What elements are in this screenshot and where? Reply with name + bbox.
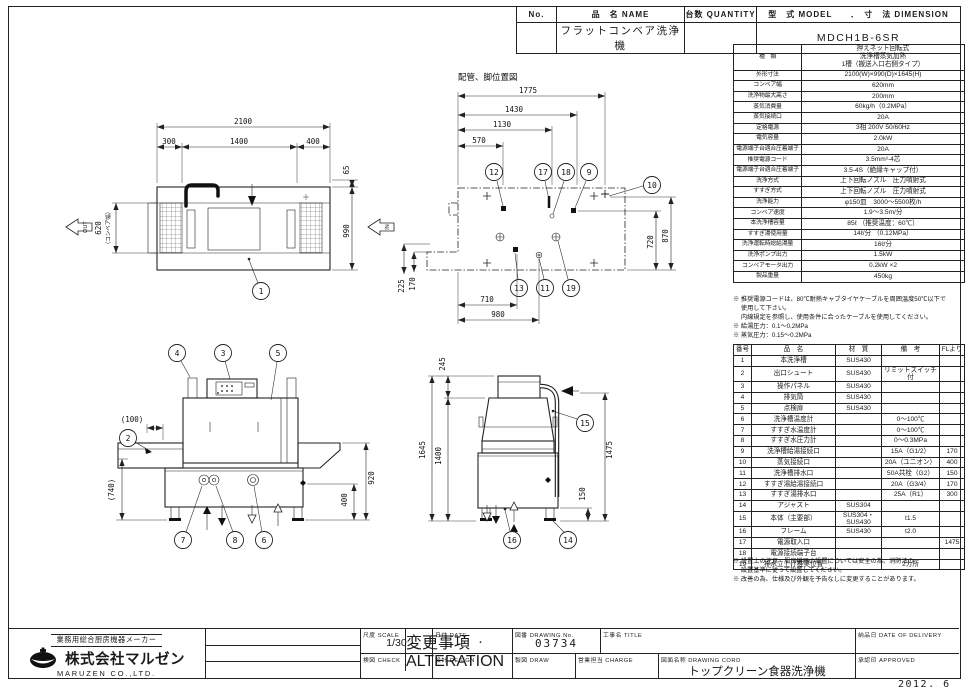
- balloon-17-label: 17: [538, 168, 548, 177]
- table-row: 本洗浄槽容量85ℓ （推奨温度：60℃）: [734, 219, 965, 230]
- table-cell: [836, 446, 882, 457]
- title-block: 業務用総合厨房機器メーカー 株式会社マルゼン MARUZEN CO.,LTD. …: [8, 628, 959, 678]
- table-cell: 電源取入口: [752, 537, 836, 548]
- balloon-14: 14: [551, 519, 577, 549]
- table-cell: 製品重量: [734, 271, 802, 282]
- table-cell: 15A（G1/2）: [882, 446, 940, 457]
- table-cell: 1.5kW: [802, 250, 965, 261]
- table-cell: 1.9〜3.5m/分: [802, 208, 965, 219]
- date-cell: 日付 DATE ・ ・: [432, 629, 512, 653]
- table-cell: [940, 425, 965, 436]
- table-row: 外形寸法2100(W)×990(D)×1645(H): [734, 70, 965, 81]
- plan-dim-2100: 2100: [234, 117, 253, 126]
- piping-dim-980: 980: [491, 310, 505, 319]
- table-cell: [940, 414, 965, 425]
- balloon-19: 19: [558, 241, 580, 297]
- table-row: 12すすぎ湯給湯接続口20A（G3/4）170: [734, 479, 965, 490]
- balloon-14-label: 14: [563, 536, 573, 545]
- side-dim-1400: 1400: [434, 446, 443, 465]
- balloon-6-label: 6: [262, 536, 267, 545]
- balloon-2: 2: [120, 430, 153, 455]
- table-cell: φ150皿 3000〜5500枚/h: [802, 197, 965, 208]
- table-row: 9洗浄槽給湯接続口15A（G1/2）170: [734, 446, 965, 457]
- table-cell: 洗浄運転時総給湯量: [734, 240, 802, 251]
- date-stamp: 2012. 6: [898, 679, 951, 690]
- balloon-13: 13: [511, 253, 528, 297]
- table-cell: SUS430: [836, 392, 882, 403]
- approved-cell: 承認印 APPROVED: [855, 653, 959, 678]
- table-cell: 0〜0.3MPa: [882, 436, 940, 447]
- balloon-16-label: 16: [507, 536, 517, 545]
- fitting-13: [513, 247, 518, 252]
- leg-marks: [483, 192, 598, 267]
- panel-buttons: [217, 385, 233, 394]
- table-cell: [882, 382, 940, 393]
- table-row: 16フレームSUS430t2.0: [734, 527, 965, 538]
- plan-dim-990: 990: [342, 224, 351, 238]
- delivery-cell: 納品日 DATE OF DELIVERY: [855, 629, 959, 653]
- table-cell: 50A共栓（G2）: [882, 468, 940, 479]
- table-cell: 洗浄槽温度計: [752, 414, 836, 425]
- table-cell: 3.5-4S（絶縁キャップ付）: [802, 166, 965, 177]
- table-row: コンベアモータ出力0.2kW ×2: [734, 261, 965, 272]
- table-row: 電気容量2.0kW: [734, 134, 965, 145]
- balloon-2-label: 2: [126, 434, 131, 443]
- design-label: 設計 DESIGN: [435, 655, 475, 664]
- table-row: 15本体（主要部）SUS304・SUS430t1.5: [734, 511, 965, 527]
- check-cell: 検図 CHECK: [360, 653, 432, 678]
- balloon-3: 3: [215, 345, 232, 380]
- balloon-6: 6: [254, 486, 273, 549]
- table-row: 蒸気消費量60kg/h（0.2MPa）: [734, 102, 965, 113]
- table-cell: 20A: [802, 144, 965, 155]
- table-row: 種 類押えネット回転式 洗浄槽蒸気加熱 1槽（搬送入口右側タイプ）: [734, 45, 965, 71]
- table-row: 7すすぎ水温度計0〜100℃: [734, 425, 965, 436]
- table-cell: 85ℓ （推奨温度：60℃）: [802, 219, 965, 230]
- alteration-box: 変更事項 ALTERATION: [205, 629, 361, 678]
- balloon-5-label: 5: [276, 349, 281, 358]
- project-title-label: 工事名 TITLE: [603, 630, 642, 639]
- balloon-10: 10: [609, 177, 661, 197]
- balloon-1-label: 1: [259, 287, 264, 296]
- piping-dim-1775: 1775: [519, 86, 537, 95]
- table-row: 製品重量450kg: [734, 271, 965, 282]
- table-row: 洗浄物最大高さ200mm: [734, 91, 965, 102]
- table-cell: [836, 436, 882, 447]
- table-cell: SUS430: [836, 366, 882, 382]
- charge-label: 営業担当 CHARGE: [578, 655, 633, 664]
- table-cell: 13: [734, 490, 752, 501]
- piping-dim-570: 570: [472, 136, 486, 145]
- table-row: 13すすぎ湯排水口25A（R1）300: [734, 490, 965, 501]
- table-cell: リミットスイッチ付: [882, 366, 940, 382]
- drawing-sheet: 2100 300 1400 400 65 990 620 （コンベア幅） OUT…: [0, 0, 969, 692]
- table-cell: 洗浄物最大高さ: [734, 91, 802, 102]
- table-cell: [882, 392, 940, 403]
- table-row: 5点検扉SUS430: [734, 403, 965, 414]
- table-cell: アジャスト: [752, 500, 836, 511]
- table-cell: SUS430: [836, 382, 882, 393]
- company-name-en: MARUZEN CO.,LTD.: [8, 669, 205, 678]
- table-cell: 洗浄槽給湯接続口: [752, 446, 836, 457]
- table-cell: 蒸気接続口: [752, 457, 836, 468]
- fitting-11: [536, 252, 542, 258]
- table-cell: 推奨電源コード: [734, 155, 802, 166]
- spec-note: ※ 給湯圧力：0.1〜0.2MPa: [733, 323, 965, 332]
- piping-dim-225: 225: [397, 279, 406, 293]
- control-panel: [216, 382, 242, 395]
- table-cell: 20A: [802, 113, 965, 124]
- table-cell: 蒸気消費量: [734, 102, 802, 113]
- table-cell: [836, 414, 882, 425]
- table-cell: 1: [734, 355, 752, 366]
- table-cell: 電源端子台適合圧着端子: [734, 144, 802, 155]
- table-row: コンベア幅620mm: [734, 81, 965, 92]
- table-row: 洗浄ポンプ出力1.5kW: [734, 250, 965, 261]
- table-cell: 10: [734, 457, 752, 468]
- piping-dim-720: 720: [646, 235, 655, 249]
- parts-header-material: 材 質: [836, 345, 882, 356]
- table-cell: [940, 403, 965, 414]
- balloon-4: 4: [169, 345, 191, 378]
- table-row: すすぎ方式上下回転ノズル 圧力噴射式: [734, 187, 965, 198]
- header-name-label: 品 名 NAME: [557, 7, 685, 23]
- table-row: 1本洗浄槽SUS430: [734, 355, 965, 366]
- table-row: 6洗浄槽温度計0〜100℃: [734, 414, 965, 425]
- table-cell: SUS304・SUS430: [836, 511, 882, 527]
- company-block: 業務用総合厨房機器メーカー 株式会社マルゼン MARUZEN CO.,LTD.: [8, 629, 205, 678]
- table-cell: [882, 403, 940, 414]
- table-cell: すすぎ水圧力計: [752, 436, 836, 447]
- balloon-18-label: 18: [561, 168, 571, 177]
- balloon-7-label: 7: [181, 536, 186, 545]
- piping-dim-710: 710: [480, 295, 494, 304]
- spec-note: 内線規定を参照し、使用条件に合ったケーブルを使用してください。: [733, 314, 965, 323]
- balloon-13-label: 13: [514, 284, 524, 293]
- table-cell: 620mm: [802, 81, 965, 92]
- plan-dim-620: 620: [94, 221, 103, 235]
- table-cell: 12: [734, 479, 752, 490]
- parts-table: 番号 品 名 材 質 備 考 FLより 1本洗浄槽SUS4302出口シュートSU…: [733, 344, 965, 570]
- table-cell: 3相 200V 50/60Hz: [802, 123, 965, 134]
- project-title-cell: 工事名 TITLE: [600, 629, 855, 653]
- parts-notes: ※ 設置上の注意 厨房機器の設置については安全の為、消防法の 設置基準に従って設…: [733, 558, 965, 585]
- side-dim-1645: 1645: [418, 441, 427, 459]
- table-cell: [940, 500, 965, 511]
- check-label: 検図 CHECK: [363, 655, 401, 664]
- table-cell: [940, 366, 965, 382]
- spec-notes: ※ 推奨電源コードは、80℃耐熱キャブタイヤケーブルを周囲温度50℃以下で 使用…: [733, 296, 965, 341]
- drawing-no-cell: 図番 DRAWING No. 03734: [512, 629, 600, 653]
- table-row: 2出口シュートSUS430リミットスイッチ付: [734, 366, 965, 382]
- table-cell: 170: [940, 479, 965, 490]
- table-cell: 外形寸法: [734, 70, 802, 81]
- table-cell: 操作パネル: [752, 382, 836, 393]
- side-dim-1475: 1475: [605, 441, 614, 459]
- front-view: 4 3 5 2 7 8: [107, 345, 376, 549]
- table-cell: 450kg: [802, 271, 965, 282]
- drawing-no-value: 03734: [513, 637, 600, 650]
- table-cell: 14ℓ/分 （0.12MPa）: [802, 229, 965, 240]
- table-cell: すすぎ湯使用量: [734, 229, 802, 240]
- balloon-8: 8: [216, 486, 244, 549]
- table-cell: 洗浄能力: [734, 197, 802, 208]
- fitting-9: [571, 208, 576, 213]
- balloon-18: 18: [553, 164, 575, 215]
- fitting-12: [501, 206, 506, 211]
- balloon-1: 1: [248, 258, 270, 300]
- spec-note: ※ 推奨電源コードは、80℃耐熱キャブタイヤケーブルを周囲温度50℃以下で: [733, 296, 965, 305]
- table-cell: 本洗浄槽: [752, 355, 836, 366]
- table-cell: 電源端子台適合圧着端子: [734, 166, 802, 177]
- table-cell: 400: [940, 457, 965, 468]
- parts-header-fl: FLより: [940, 345, 965, 356]
- table-row: 蒸気接続口20A: [734, 113, 965, 124]
- table-cell: 15: [734, 511, 752, 527]
- plan-view: 2100 300 1400 400 65 990 620 （コンベア幅） OUT…: [66, 117, 394, 300]
- fitting-18: [550, 214, 554, 218]
- table-cell: [836, 537, 882, 548]
- table-cell: 8: [734, 436, 752, 447]
- table-cell: 25A（R1）: [882, 490, 940, 501]
- balloon-4-label: 4: [175, 349, 180, 358]
- table-cell: [940, 527, 965, 538]
- table-cell: 0.2kW ×2: [802, 261, 965, 272]
- balloon-5: 5: [270, 345, 287, 401]
- table-cell: 押えネット回転式 洗浄槽蒸気加熱 1槽（搬送入口右側タイプ）: [802, 45, 965, 71]
- front-dim-920: 920: [367, 471, 376, 485]
- parts-header-name: 品 名: [752, 345, 836, 356]
- table-cell: 6: [734, 414, 752, 425]
- front-dim-740: (740): [107, 479, 116, 502]
- table-cell: 洗浄槽排水口: [752, 468, 836, 479]
- header-no-value: [517, 23, 557, 54]
- table-cell: 4: [734, 392, 752, 403]
- table-cell: 本体（主要部）: [752, 511, 836, 527]
- front-dim-400: 400: [340, 493, 349, 507]
- table-cell: 洗浄方式: [734, 176, 802, 187]
- plan-dim-belt-note: （コンベア幅）: [104, 209, 112, 248]
- table-cell: すすぎ湯給湯接続口: [752, 479, 836, 490]
- fitting-extra: [496, 233, 504, 241]
- piping-dim-1130: 1130: [493, 120, 512, 129]
- table-row: 洗浄運転時総給湯量16ℓ/分: [734, 240, 965, 251]
- table-row: 推奨電源コード3.5mm²-4芯: [734, 155, 965, 166]
- table-cell: SUS304: [836, 500, 882, 511]
- table-cell: 洗浄ポンプ出力: [734, 250, 802, 261]
- table-cell: 170: [940, 446, 965, 457]
- table-cell: 3: [734, 382, 752, 393]
- table-row: 8すすぎ水圧力計0〜0.3MPa: [734, 436, 965, 447]
- table-cell: 200mm: [802, 91, 965, 102]
- table-cell: 300: [940, 490, 965, 501]
- table-cell: 蒸気接続口: [734, 113, 802, 124]
- table-cell: [940, 511, 965, 527]
- parts-note: ※ 設置上の注意 厨房機器の設置については安全の為、消防法の: [733, 558, 965, 567]
- table-row: 洗浄方式上下回転ノズル 圧力噴射式: [734, 176, 965, 187]
- table-cell: t2.0: [882, 527, 940, 538]
- balloon-15-label: 15: [580, 419, 590, 428]
- table-row: 14アジャストSUS304: [734, 500, 965, 511]
- table-cell: 60kg/h（0.2MPa）: [802, 102, 965, 113]
- pump-fittings: [199, 475, 259, 486]
- maruzen-logo-icon: [28, 647, 62, 669]
- table-cell: 20A（G3/4）: [882, 479, 940, 490]
- table-cell: 定格電源: [734, 123, 802, 134]
- table-cell: 0〜100℃: [882, 425, 940, 436]
- table-cell: 上下回転ノズル 圧力噴射式: [802, 187, 965, 198]
- piping-dim-870: 870: [661, 229, 670, 243]
- table-row: 3操作パネルSUS430: [734, 382, 965, 393]
- date-value: ・ ・: [433, 637, 512, 648]
- table-row: 10蒸気接続口20A（ユニオン）400: [734, 457, 965, 468]
- table-cell: 本洗浄槽容量: [734, 219, 802, 230]
- table-cell: [836, 468, 882, 479]
- fitting-10: [601, 190, 609, 198]
- table-cell: すすぎ湯排水口: [752, 490, 836, 501]
- table-cell: 20A（ユニオン）: [882, 457, 940, 468]
- table-cell: コンベア速度: [734, 208, 802, 219]
- inlet-arrow: [561, 386, 573, 396]
- alteration-row: [206, 661, 361, 662]
- header-no-label: No.: [517, 7, 557, 23]
- drawing-name-value: トップクリーン食器洗浄機: [659, 663, 855, 679]
- front-dim-100: (100): [121, 415, 144, 424]
- table-cell: [836, 490, 882, 501]
- table-row: 定格電源3相 200V 50/60Hz: [734, 123, 965, 134]
- fitting-19: [552, 233, 560, 241]
- table-cell: [882, 355, 940, 366]
- table-row: 17電源取入口1475: [734, 537, 965, 548]
- table-cell: [940, 382, 965, 393]
- balloon-9: 9: [575, 164, 598, 209]
- table-cell: 11: [734, 468, 752, 479]
- table-cell: コンベア幅: [734, 81, 802, 92]
- table-cell: [940, 392, 965, 403]
- plan-dim-400: 400: [306, 137, 320, 146]
- table-cell: SUS430: [836, 355, 882, 366]
- design-cell: 設計 DESIGN: [432, 653, 512, 678]
- table-cell: 点検扉: [752, 403, 836, 414]
- charge-cell: 営業担当 CHARGE: [575, 653, 658, 678]
- flow-arrow-down: [248, 196, 256, 206]
- spec-table: 種 類押えネット回転式 洗浄槽蒸気加熱 1槽（搬送入口右側タイプ）外形寸法210…: [733, 44, 965, 283]
- plan-dim-1400: 1400: [230, 137, 249, 146]
- header-qty-label: 台数 QUANTITY: [685, 7, 757, 23]
- table-cell: 排気筒: [752, 392, 836, 403]
- header-model-label: 型 式 MODEL ． 寸 法 DIMENSION: [757, 7, 961, 23]
- plan-dim-300: 300: [162, 137, 176, 146]
- header-name-value: フラットコンベア洗浄機: [557, 23, 685, 54]
- table-cell: 0〜100℃: [882, 414, 940, 425]
- side-dim-150: 150: [578, 487, 587, 501]
- table-cell: 上下回転ノズル 圧力噴射式: [802, 176, 965, 187]
- table-cell: 5: [734, 403, 752, 414]
- balloon-9-label: 9: [587, 168, 592, 177]
- table-cell: [940, 355, 965, 366]
- approved-label: 承認印 APPROVED: [858, 655, 915, 664]
- service-arrows: [203, 504, 282, 530]
- spec-note: 使用して下さい。: [733, 305, 965, 314]
- table-cell: 電気容量: [734, 134, 802, 145]
- balloon-3-label: 3: [221, 349, 226, 358]
- piping-dim-170: 170: [408, 277, 417, 291]
- balloon-12: 12: [486, 164, 504, 207]
- alteration-row: [206, 645, 361, 646]
- table-cell: 150: [940, 468, 965, 479]
- table-cell: 16: [734, 527, 752, 538]
- company-tagline: 業務用総合厨房機器メーカー: [51, 634, 163, 647]
- parts-header-no: 番号: [734, 345, 752, 356]
- plan-dim-65: 65: [342, 165, 351, 174]
- table-cell: 2: [734, 366, 752, 382]
- side-dim-245: 245: [438, 357, 447, 371]
- table-cell: フレーム: [752, 527, 836, 538]
- balloon-12-label: 12: [489, 168, 499, 177]
- table-cell: コンベアモータ出力: [734, 261, 802, 272]
- table-cell: [882, 500, 940, 511]
- out-label: OUT: [83, 221, 89, 233]
- spec-note: ※ 蒸気圧力：0.15〜0.2MPa: [733, 332, 965, 341]
- balloon-17: 17: [535, 164, 552, 201]
- table-cell: SUS430: [836, 527, 882, 538]
- delivery-label: 納品日 DATE OF DELIVERY: [858, 630, 942, 639]
- table-cell: 3.5mm²-4芯: [802, 155, 965, 166]
- in-label: IN: [385, 224, 391, 230]
- table-cell: [940, 436, 965, 447]
- table-cell: 2.0kW: [802, 134, 965, 145]
- draw-cell: 製図 DRAW: [512, 653, 575, 678]
- table-cell: すすぎ方式: [734, 187, 802, 198]
- vent-box: [498, 376, 540, 398]
- side-view: 15 16 14 245 1645 1400 1475: [418, 357, 614, 548]
- table-row: 電源端子台適合圧着端子3.5-4S（絶縁キャップ付）: [734, 166, 965, 177]
- table-cell: 9: [734, 446, 752, 457]
- table-row: 4排気筒SUS430: [734, 392, 965, 403]
- table-cell: 2100(W)×990(D)×1645(H): [802, 70, 965, 81]
- table-cell: 1475: [940, 537, 965, 548]
- parts-header-remarks: 備 考: [882, 345, 940, 356]
- drawing-name-cell: 図面名称 DRAWING CORD トップクリーン食器洗浄機: [658, 653, 855, 678]
- balloon-7: 7: [175, 486, 203, 549]
- table-row: すすぎ湯使用量14ℓ/分 （0.12MPa）: [734, 229, 965, 240]
- table-cell: 7: [734, 425, 752, 436]
- table-row: 電源端子台適合圧着端子20A: [734, 144, 965, 155]
- table-cell: [836, 479, 882, 490]
- table-cell: 17: [734, 537, 752, 548]
- parts-note: ※ 改善の為、仕様及び外観を予告なしに変更することがあります。: [733, 576, 965, 585]
- table-cell: [882, 537, 940, 548]
- balloon-19-label: 19: [566, 284, 576, 293]
- table-cell: t1.5: [882, 511, 940, 527]
- piping-view: 配管、脚位置図: [397, 72, 676, 324]
- table-cell: [836, 457, 882, 468]
- table-row: 11洗浄槽排水口50A共栓（G2）150: [734, 468, 965, 479]
- table-cell: 14: [734, 500, 752, 511]
- table-row: コンベア速度1.9〜3.5m/分: [734, 208, 965, 219]
- balloon-11-label: 11: [540, 284, 550, 293]
- table-cell: 出口シュート: [752, 366, 836, 382]
- draw-label: 製図 DRAW: [515, 655, 549, 664]
- piping-dim-1430: 1430: [505, 105, 524, 114]
- piping-title: 配管、脚位置図: [458, 72, 518, 82]
- company-name-jp: 株式会社マルゼン: [65, 648, 185, 669]
- table-cell: 種 類: [734, 45, 802, 71]
- scale-value: 1/30: [361, 637, 432, 649]
- table-cell: 16ℓ/分: [802, 240, 965, 251]
- table-cell: すすぎ水温度計: [752, 425, 836, 436]
- table-cell: [836, 425, 882, 436]
